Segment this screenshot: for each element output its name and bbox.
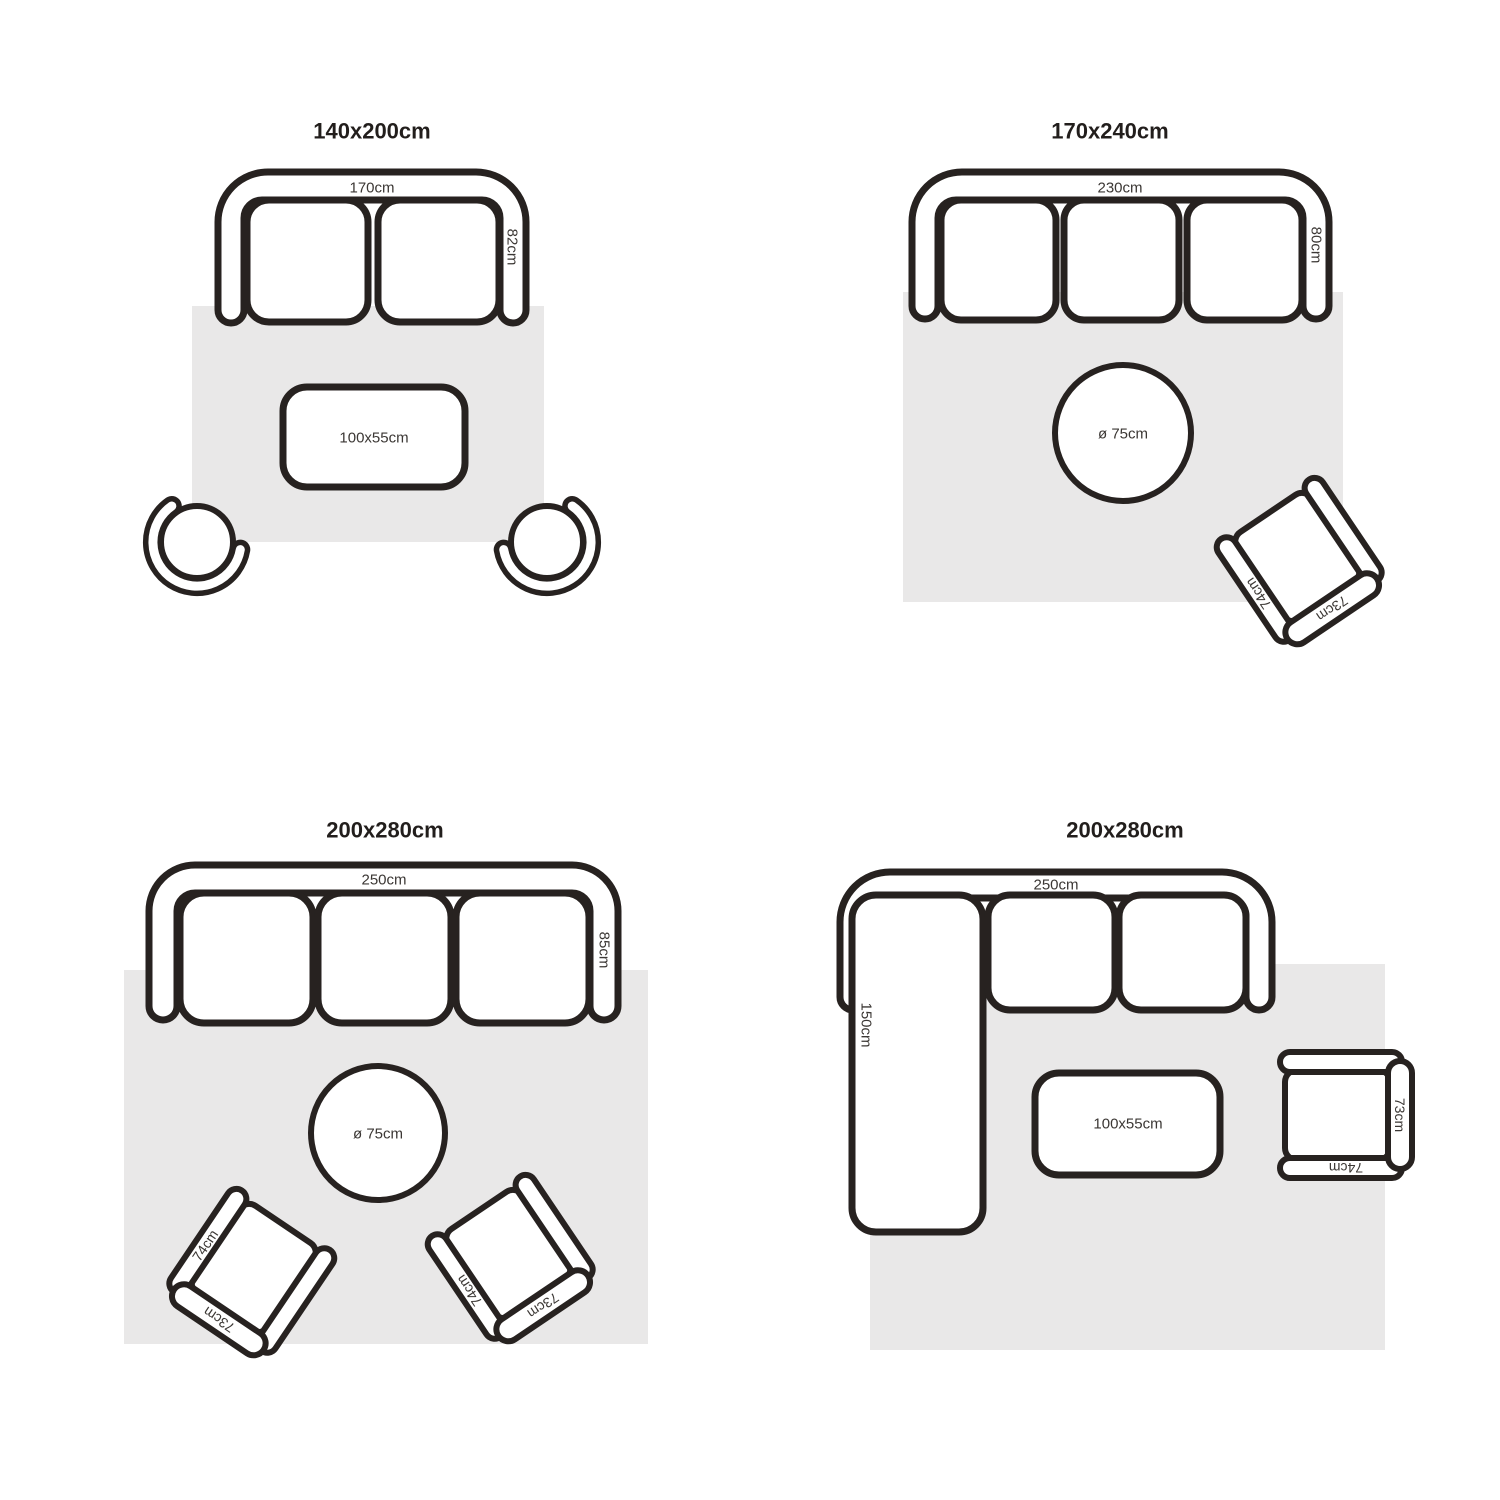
tub-chair	[504, 506, 591, 586]
layout-title: 140x200cm	[313, 119, 430, 144]
sofa-width-label: 230cm	[1097, 180, 1142, 197]
round-table-label: ø 75cm	[1098, 426, 1148, 443]
layout-title: 200x280cm	[1066, 818, 1183, 843]
sofa-cushion	[180, 893, 313, 1023]
tub-chair	[153, 506, 240, 586]
sofa-width-label: 170cm	[349, 180, 394, 197]
sofa-cushion	[378, 200, 499, 322]
layout-200x280-b: 200x280cm 250cm 150cm 100x55cm 73cm 74cm	[840, 818, 1412, 1351]
diagram-canvas: 140x200cm 170cm 82cm 100x55cm 170x240cm	[0, 0, 1500, 1500]
armchair: 73cm 74cm	[1280, 1052, 1412, 1178]
layout-title: 170x240cm	[1051, 119, 1168, 144]
sofa-width-label: 250cm	[1033, 877, 1078, 894]
coffee-table-label: 100x55cm	[339, 430, 408, 447]
sofa-chaise-depth-label: 150cm	[858, 1002, 875, 1047]
sofa-cushion	[941, 200, 1056, 320]
sofa-cushion	[456, 893, 589, 1023]
armchair-depth-label: 74cm	[1329, 1160, 1363, 1176]
sofa-chaise-cushion	[852, 895, 983, 1232]
layout-200x280-a: 200x280cm 250cm 85cm ø 75cm 73cm 74cm 73…	[124, 818, 648, 1365]
sofa-depth-label: 85cm	[596, 932, 613, 969]
coffee-table-label: 100x55cm	[1093, 1116, 1162, 1133]
sofa-width-label: 250cm	[361, 872, 406, 889]
sofa-cushion	[1119, 895, 1246, 1010]
layout-title: 200x280cm	[326, 818, 443, 843]
sofa-depth-label: 80cm	[1308, 227, 1325, 264]
round-table-label: ø 75cm	[353, 1126, 403, 1143]
sofa-cushion	[1187, 200, 1302, 320]
rug-size-guide-diagram: 140x200cm 170cm 82cm 100x55cm 170x240cm	[0, 0, 1500, 1500]
sofa-cushion	[247, 200, 368, 322]
sofa-depth-label: 82cm	[504, 229, 521, 266]
sofa-cushion	[1064, 200, 1179, 320]
layout-170x240: 170x240cm 230cm 80cm ø 75cm 73cm 74cm	[903, 119, 1391, 654]
armchair-width-label: 73cm	[1392, 1098, 1408, 1132]
layout-140x200: 140x200cm 170cm 82cm 100x55cm	[153, 119, 591, 587]
sofa-cushion	[318, 893, 451, 1023]
sofa-cushion	[988, 895, 1115, 1010]
